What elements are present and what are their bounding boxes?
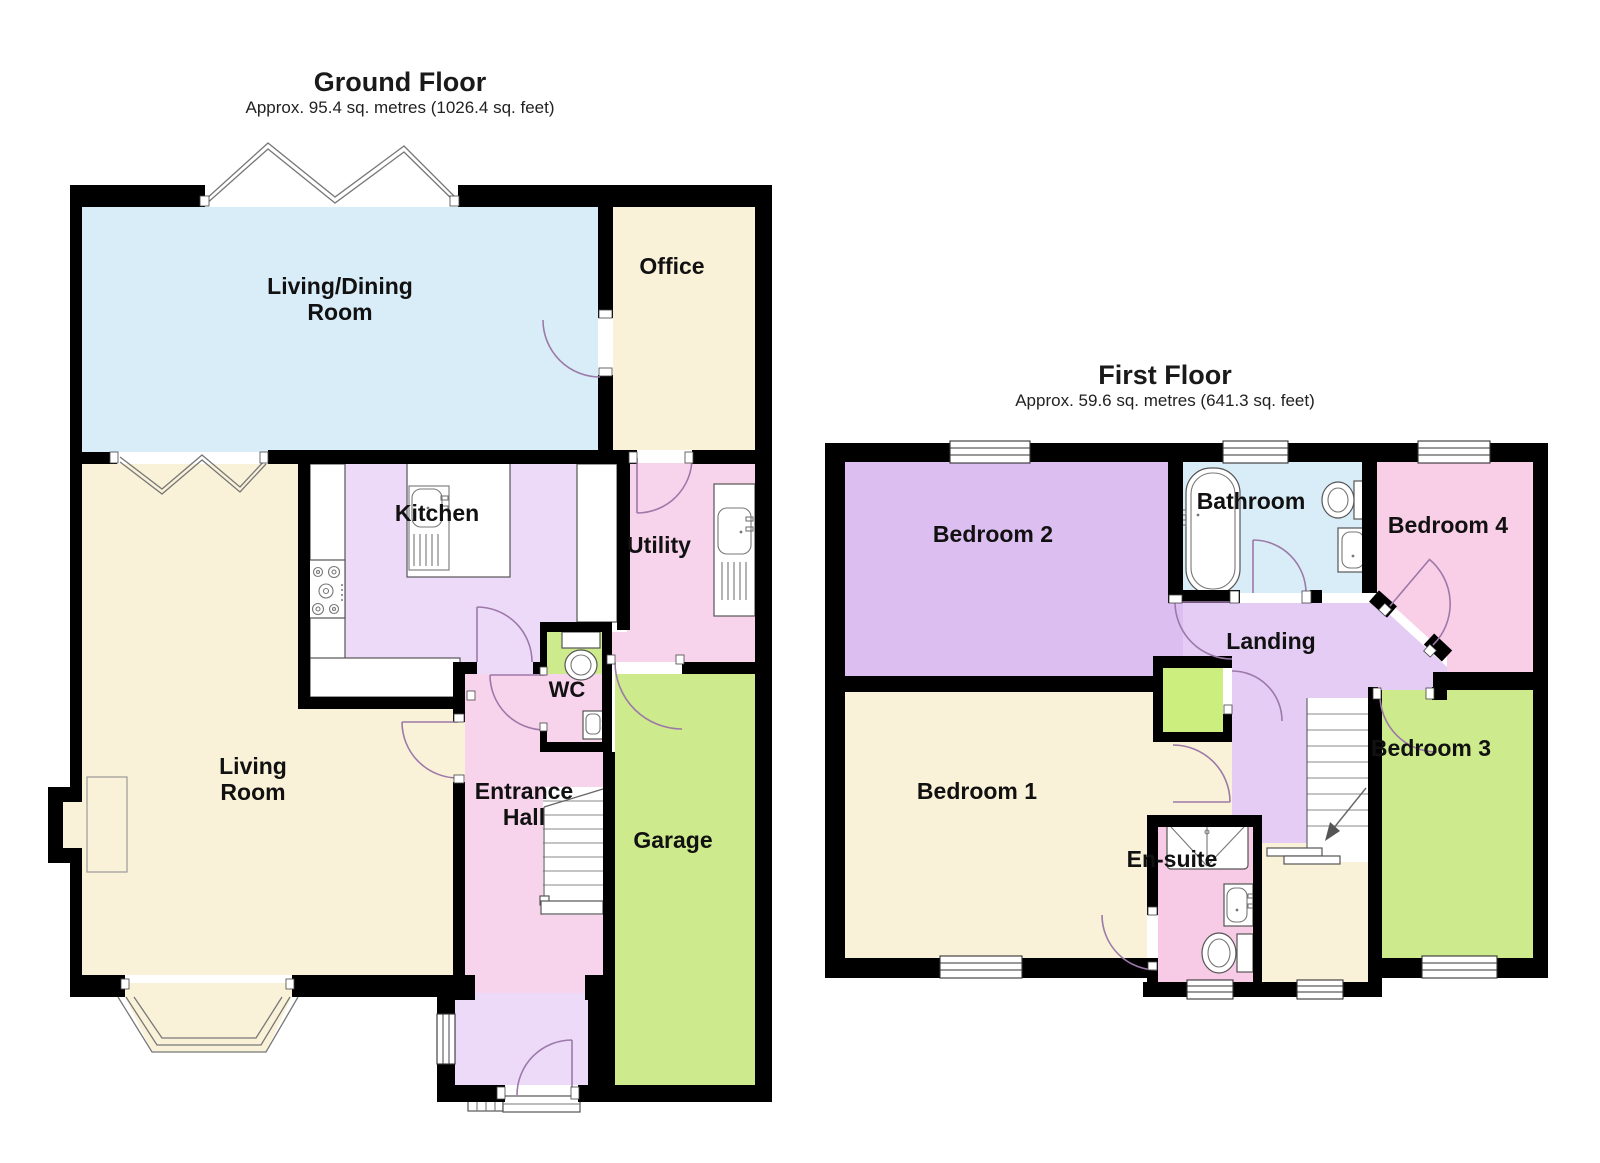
ground-floor-title: Ground Floor <box>314 67 487 97</box>
hob <box>308 560 345 618</box>
floor-plan-svg: Living/Dining Room Office Kitchen Utilit… <box>0 0 1600 1163</box>
ensuite-window <box>1187 980 1233 999</box>
bedroom2-label: Bedroom 2 <box>933 521 1053 547</box>
bay-window-zigzag-top <box>205 143 458 205</box>
room-bedroom2 <box>845 462 1183 690</box>
ensuite-basin <box>1224 884 1255 926</box>
floor-plan-page: Living/Dining Room Office Kitchen Utilit… <box>0 0 1600 1163</box>
living-room-label-1: Living <box>219 753 287 779</box>
chimney-recess <box>63 802 88 848</box>
porch-window <box>437 1014 455 1064</box>
kitchen-label: Kitchen <box>395 500 479 526</box>
staircase-first <box>1303 698 1368 862</box>
garage-label: Garage <box>633 827 712 853</box>
living-dining-label-2: Room <box>307 299 372 325</box>
first-floor-title: First Floor <box>1098 360 1232 390</box>
kitchen-counter-bottom <box>310 658 460 697</box>
closet <box>1163 668 1223 732</box>
nook-window <box>1297 980 1343 999</box>
ensuite-toilet <box>1202 933 1253 973</box>
ground-floor-plan: Living/Dining Room Office Kitchen Utilit… <box>48 143 772 1112</box>
ensuite-label: En-suite <box>1127 846 1218 872</box>
wc-toilet <box>562 632 600 680</box>
room-living-dining <box>82 207 598 452</box>
room-garage <box>615 674 755 1085</box>
bedroom1-label: Bedroom 1 <box>917 778 1037 804</box>
kitchen-cupboard <box>577 464 617 622</box>
bedroom4-window <box>1418 441 1490 463</box>
bedroom2-window <box>950 441 1030 463</box>
room-office <box>613 207 755 450</box>
bedroom1-window <box>940 956 1022 978</box>
landing-label: Landing <box>1226 628 1315 654</box>
ground-rooms <box>63 207 755 1085</box>
entrance-hall-label-2: Hall <box>503 804 545 830</box>
room-bedroom3 <box>1382 690 1533 958</box>
staircase-ground <box>540 787 603 915</box>
utility-sink <box>714 484 755 616</box>
wc-label: WC <box>549 677 586 702</box>
bedroom3-window <box>1422 956 1497 978</box>
ground-floor-subtitle: Approx. 95.4 sq. metres (1026.4 sq. feet… <box>246 98 555 117</box>
utility-label: Utility <box>627 532 691 558</box>
bathroom-label: Bathroom <box>1197 488 1306 514</box>
entrance-hall-label-1: Entrance <box>475 778 573 804</box>
living-dining-label-1: Living/Dining <box>267 273 413 299</box>
bathroom-window <box>1223 441 1288 463</box>
office-label: Office <box>639 253 704 279</box>
bedroom3-label: Bedroom 3 <box>1371 735 1491 761</box>
first-floor-subtitle: Approx. 59.6 sq. metres (641.3 sq. feet) <box>1015 391 1315 410</box>
bathtub <box>1180 468 1240 594</box>
first-floor-plan: Bedroom 2 Bathroom Bedroom 4 Landing Bed… <box>825 441 1548 999</box>
living-room-label-2: Room <box>220 779 285 805</box>
bedroom4-label: Bedroom 4 <box>1388 512 1508 538</box>
